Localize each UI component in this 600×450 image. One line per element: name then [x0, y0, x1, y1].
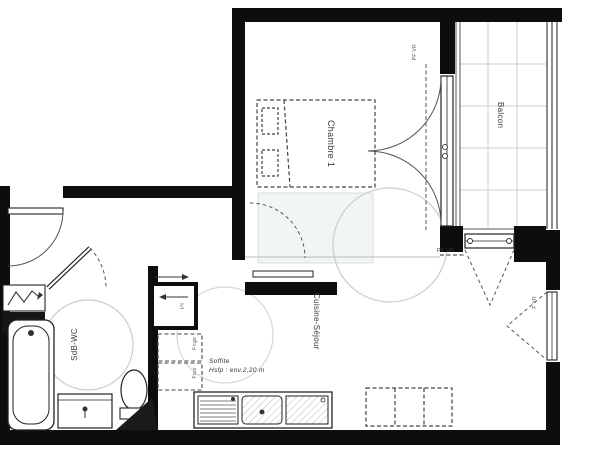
balcony-railing — [547, 22, 557, 229]
floor-plan: Chambre 1 Balcon Cuisine-Séjour SdB-WC P… — [0, 0, 600, 450]
appliance-label-oven: Four — [192, 367, 198, 378]
entry-door-leaf — [8, 208, 63, 214]
vanity-sink — [58, 394, 112, 428]
door-swing-arc — [368, 78, 441, 151]
drain-icon — [260, 410, 265, 415]
faucet-icon — [28, 330, 34, 336]
wall-hall-living — [245, 282, 337, 295]
bed — [257, 100, 375, 187]
pillow — [262, 108, 278, 134]
entry-door — [8, 208, 63, 266]
sliding-door-leaf — [253, 271, 313, 277]
bed-fold-line — [284, 100, 290, 187]
wall-bottom — [0, 430, 560, 445]
room-label-living: Cuisine-Séjour — [312, 293, 321, 350]
sink — [242, 396, 282, 424]
kitchen-counter — [194, 392, 332, 428]
wall-bedroom-right-upper — [440, 22, 455, 74]
entry-door-swing — [8, 211, 63, 266]
pillow — [262, 150, 278, 176]
door-swing-arc — [368, 151, 441, 224]
radiator — [3, 285, 45, 311]
door-swing-dashed — [465, 250, 514, 305]
room-label-balcony: Balcon — [496, 102, 505, 128]
room-label-bedroom: Chambre 1 — [326, 120, 336, 167]
faucet-icon — [231, 397, 235, 401]
drainer — [198, 396, 238, 424]
floor-plan-drawing — [0, 0, 600, 450]
room-label-bathroom: SdB-WC — [70, 328, 79, 361]
closet — [152, 274, 196, 328]
bathroom-door-swing — [90, 248, 106, 288]
turning-circle-bathroom — [43, 300, 133, 390]
closet-label: Pl — [180, 303, 186, 309]
wall-balcony-block-right — [514, 226, 546, 262]
arrow-right-icon — [182, 274, 189, 280]
wall-bedroom-left — [232, 8, 245, 260]
wall-hall-top-b — [63, 186, 245, 198]
wall-top — [232, 8, 562, 22]
bedroom-balcony-window — [368, 64, 453, 230]
worktop — [286, 396, 328, 424]
soffit-note-line2: Hsfp : env.2,20 m — [209, 367, 265, 376]
opening-label-bedroom-balcony: PF VR — [412, 44, 418, 60]
opening-label-side-window: F VR — [532, 296, 538, 309]
bathroom-door — [48, 248, 106, 288]
dining-table — [366, 388, 452, 426]
soffit-note-line1: Soffite — [209, 358, 265, 367]
window-swing-dashed — [507, 292, 547, 360]
appliance-label-fridge: Frigo — [192, 337, 198, 350]
bathtub — [8, 320, 54, 430]
floor-tint — [258, 193, 373, 263]
opening-label-living-balcony: PF VR — [437, 248, 454, 254]
soffit-note: Soffite Hsfp : env.2,20 m — [209, 358, 265, 376]
